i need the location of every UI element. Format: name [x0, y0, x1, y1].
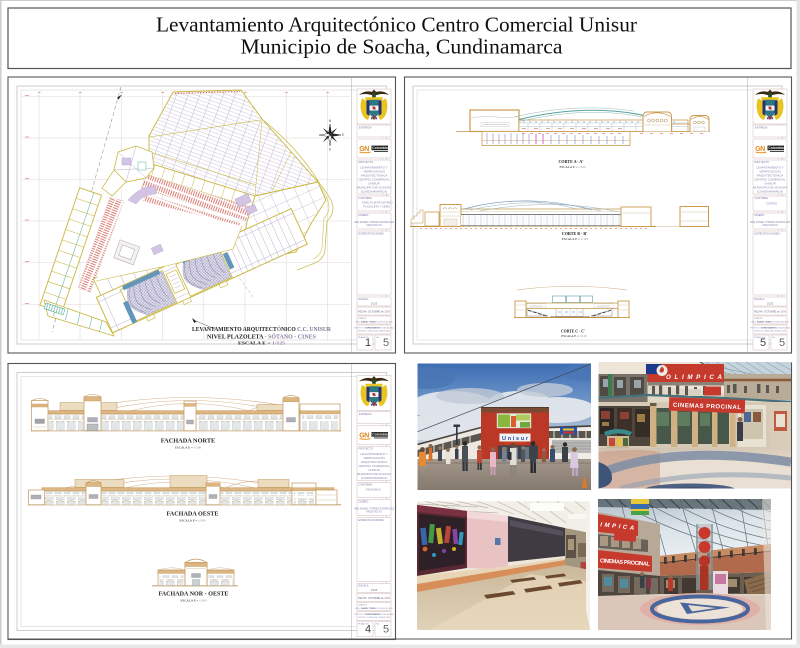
svg-text:FACHADA NORTE: FACHADA NORTE — [161, 439, 216, 445]
svg-text:5: 5 — [383, 624, 389, 636]
svg-text:LEVANTAMIENTO ARQUITECTÓNICO C: LEVANTAMIENTO ARQUITECTÓNICO C.C. UNISUR — [192, 325, 331, 333]
svg-text:ESCALA E = 1/100: ESCALA E = 1/100 — [181, 599, 208, 603]
svg-text:4: 4 — [365, 624, 371, 636]
svg-text:ESCALA E = 1/125: ESCALA E = 1/125 — [560, 165, 587, 169]
svg-text:5: 5 — [760, 337, 766, 349]
svg-text:Municipio de Soacha, Cundinama: Municipio de Soacha, Cundinamarca — [241, 35, 564, 59]
svg-text:NIVEL PLAZOLETA - SÓTANO - CIN: NIVEL PLAZOLETA - SÓTANO - CINES — [207, 333, 316, 341]
svg-text:FACHADA OESTE: FACHADA OESTE — [167, 512, 219, 518]
svg-text:FACHADAS: FACHADAS — [366, 488, 381, 492]
svg-text:Levantamiento Arquitectónico C: Levantamiento Arquitectónico Centro Come… — [156, 13, 637, 37]
svg-text:NIVEL PLANTA SOTANO: NIVEL PLANTA SOTANO — [362, 201, 392, 205]
svg-text:5: 5 — [779, 337, 785, 349]
svg-text:1: 1 — [365, 337, 371, 349]
svg-text:CORTES: CORTES — [766, 202, 777, 206]
svg-text:CORTE A - A': CORTE A - A' — [559, 159, 584, 164]
svg-text:ESCALA E = 1/100: ESCALA E = 1/100 — [180, 519, 207, 523]
svg-text:PLAZOLETA Y CINES: PLAZOLETA Y CINES — [364, 205, 391, 209]
svg-text:CORTE B - B': CORTE B - B' — [562, 231, 588, 236]
svg-text:CORTE C - C': CORTE C - C' — [561, 329, 585, 334]
svg-text:ESCALA E = 1/125: ESCALA E = 1/125 — [561, 334, 587, 338]
svg-text:FACHADA NOR - OESTE: FACHADA NOR - OESTE — [159, 592, 229, 598]
svg-text:ESCALA E = 1/125: ESCALA E = 1/125 — [562, 237, 589, 241]
svg-text:ESCALA E = 1/125: ESCALA E = 1/125 — [238, 341, 286, 346]
svg-text:ESCALA E = 1/100: ESCALA E = 1/100 — [175, 446, 202, 450]
svg-text:5: 5 — [383, 337, 389, 349]
